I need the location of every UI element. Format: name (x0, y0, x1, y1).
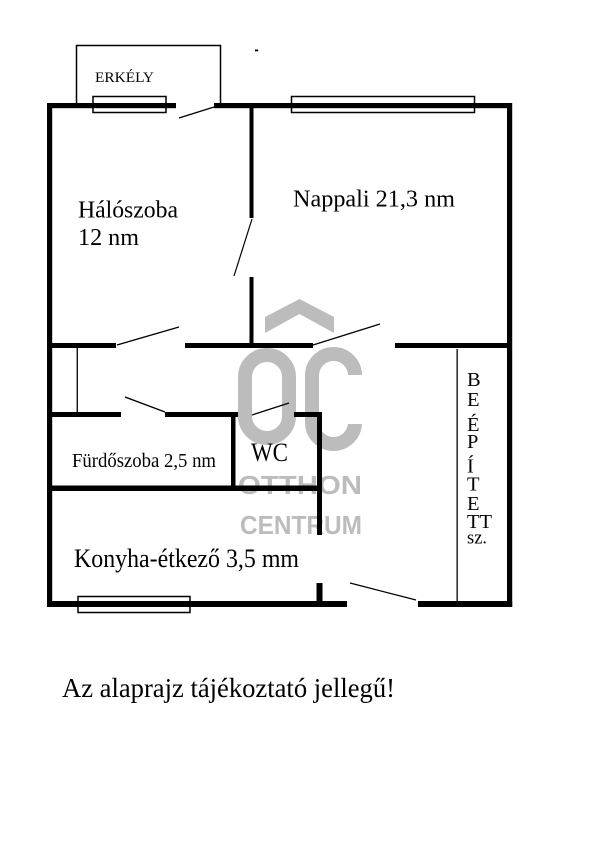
svg-text:WC: WC (251, 438, 288, 467)
svg-text:Fürdőszoba 2,5 nm: Fürdőszoba 2,5 nm (72, 450, 216, 472)
svg-text:Nappali 21,3 nm: Nappali 21,3 nm (293, 187, 455, 213)
svg-text:E: E (467, 389, 480, 411)
svg-text:OTTHON: OTTHON (238, 470, 362, 500)
svg-text:CENTRUM: CENTRUM (240, 510, 362, 540)
svg-text:Hálószoba: Hálószoba (78, 198, 178, 224)
svg-text:P: P (467, 431, 478, 453)
svg-text:Az alaprajz tájékoztató jelleg: Az alaprajz tájékoztató jellegű! (62, 673, 395, 703)
svg-text:ERKÉLY: ERKÉLY (95, 69, 154, 86)
svg-text:12 nm: 12 nm (78, 225, 139, 251)
svg-text:B: B (467, 369, 481, 391)
svg-text:sz.: sz. (467, 529, 487, 549)
svg-text:Konyha-étkező 3,5 mm: Konyha-étkező 3,5 mm (74, 544, 299, 573)
